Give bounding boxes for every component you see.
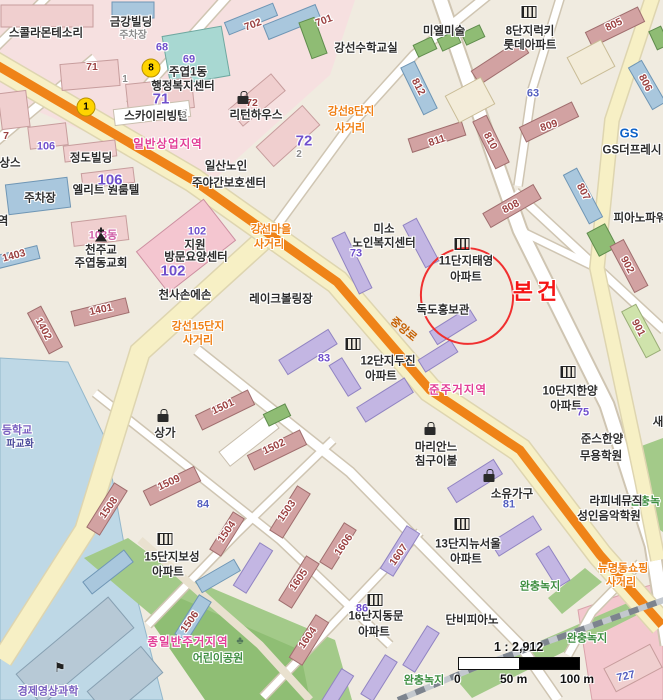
building (536, 546, 570, 588)
building (28, 123, 68, 149)
building (430, 307, 477, 344)
building (649, 26, 663, 50)
building (403, 218, 439, 267)
building (361, 655, 397, 700)
building (112, 2, 154, 18)
scale-bar: 1 : 2,912 0 50 m 100 m (448, 640, 598, 688)
scale-bar-graphic (458, 657, 580, 670)
building (28, 306, 63, 354)
scale-tick: 50 m (500, 672, 527, 686)
building (63, 140, 117, 162)
scale-tick: 0 (454, 672, 461, 686)
building (408, 122, 466, 153)
scale-ratio: 1 : 2,912 (494, 640, 543, 654)
scale-tick: 100 m (560, 672, 594, 686)
building (401, 61, 437, 114)
building (143, 467, 200, 506)
building (5, 177, 70, 214)
building (71, 216, 129, 247)
building (81, 167, 134, 188)
building (461, 25, 485, 45)
building (60, 60, 120, 91)
building (162, 26, 230, 86)
building (279, 329, 337, 374)
building (357, 378, 413, 422)
building (329, 358, 361, 396)
building (380, 526, 419, 576)
building (491, 516, 542, 556)
building (71, 298, 129, 326)
building (0, 90, 30, 129)
scale-bar-white-segment (459, 658, 519, 669)
building (448, 459, 503, 502)
building (567, 40, 615, 84)
map-canvas[interactable]: 스콜라몬테소리금강빌딩주차장주엽1동행정복지센터스카이리빙텔리턴하우스정도빌딩일… (0, 0, 663, 700)
building (413, 37, 437, 57)
building (1, 5, 93, 27)
building (195, 390, 254, 430)
building (0, 246, 40, 269)
scale-bar-black-segment (519, 658, 579, 669)
target-annotation-label: 본건 (513, 281, 561, 303)
building (403, 626, 439, 672)
building (320, 523, 356, 569)
map-tile-art (0, 0, 663, 700)
building (629, 60, 663, 109)
